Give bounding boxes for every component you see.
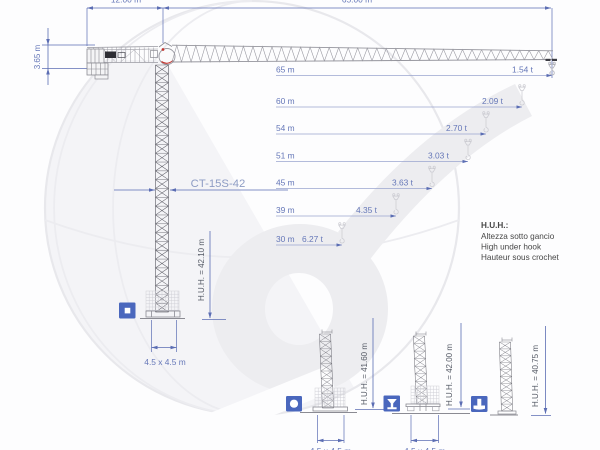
- svg-text:H.U.H. = 41.60 m: H.U.H. = 41.60 m: [360, 343, 369, 405]
- svg-text:4.5 x 4.5 m: 4.5 x 4.5 m: [404, 446, 445, 450]
- svg-text:51 m: 51 m: [276, 150, 295, 160]
- svg-text:60 m: 60 m: [276, 96, 295, 106]
- svg-text:H.U.H. = 42.10 m: H.U.H. = 42.10 m: [197, 239, 206, 301]
- svg-text:Altezza sotto gancio: Altezza sotto gancio: [481, 232, 555, 241]
- svg-text:6.27 t: 6.27 t: [302, 234, 324, 244]
- svg-text:65.00 m: 65.00 m: [342, 0, 372, 5]
- svg-text:12.00 m: 12.00 m: [111, 0, 141, 5]
- svg-text:1.54 t: 1.54 t: [512, 64, 534, 74]
- svg-text:45 m: 45 m: [276, 177, 295, 187]
- svg-text:30 m: 30 m: [276, 234, 295, 244]
- svg-text:CT-15S-42: CT-15S-42: [191, 178, 246, 190]
- svg-text:4.5 x 4.5 m: 4.5 x 4.5 m: [144, 357, 185, 367]
- svg-text:3.65 m: 3.65 m: [33, 44, 42, 69]
- svg-text:3.03 t: 3.03 t: [428, 150, 450, 160]
- svg-text:2.70 t: 2.70 t: [446, 123, 468, 133]
- svg-text:4.5 x 4.5 m: 4.5 x 4.5 m: [310, 446, 351, 450]
- svg-text:2.09 t: 2.09 t: [482, 96, 504, 106]
- svg-text:39 m: 39 m: [276, 205, 295, 215]
- svg-text:Hauteur sous crochet: Hauteur sous crochet: [481, 253, 560, 262]
- svg-text:H.U.H. = 42.00 m: H.U.H. = 42.00 m: [445, 344, 454, 406]
- svg-text:4.35 t: 4.35 t: [356, 205, 378, 215]
- svg-text:High under hook: High under hook: [481, 243, 542, 252]
- svg-text:H.U.H.:: H.U.H.:: [481, 221, 508, 230]
- svg-text:54 m: 54 m: [276, 123, 295, 133]
- svg-text:H.U.H. = 40.75 m: H.U.H. = 40.75 m: [531, 345, 540, 407]
- svg-text:65 m: 65 m: [276, 64, 295, 74]
- svg-text:3.63 t: 3.63 t: [392, 177, 414, 187]
